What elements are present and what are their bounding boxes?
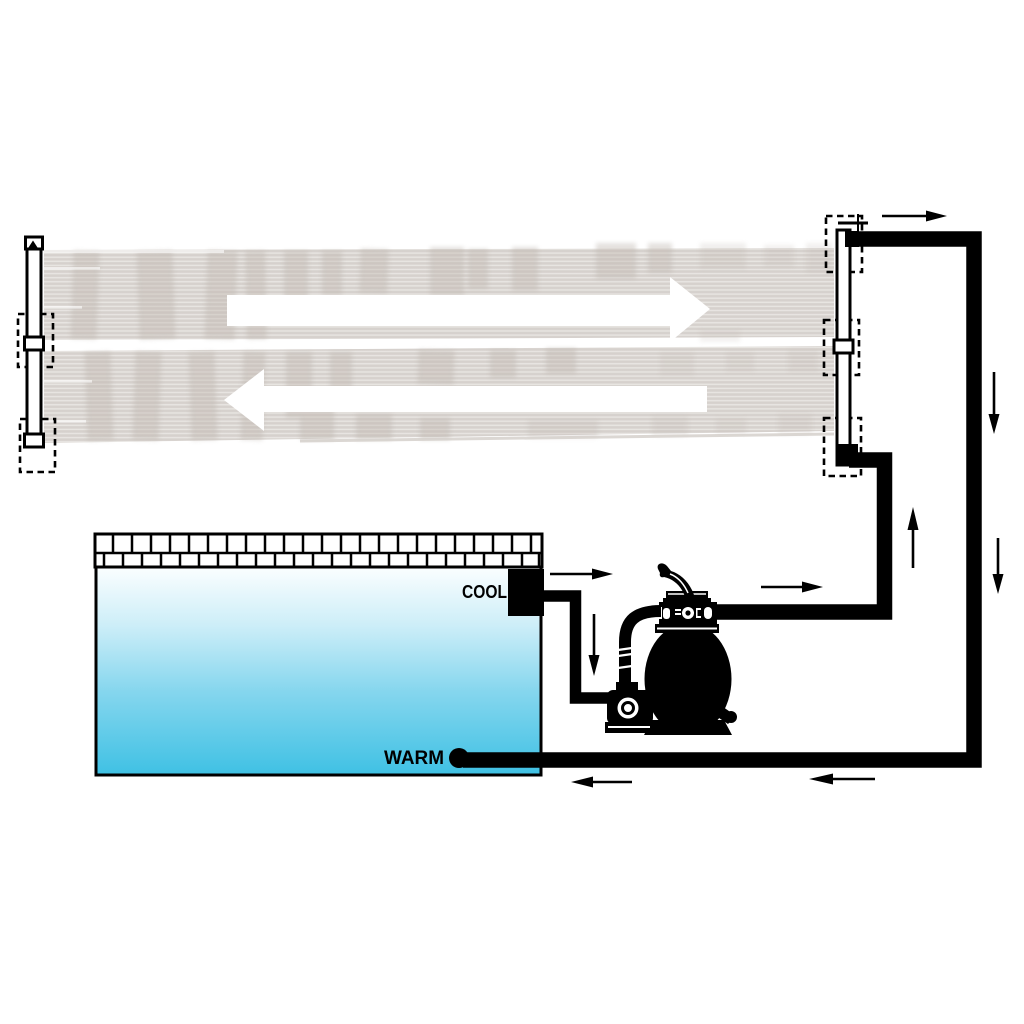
svg-text:COOL: COOL — [462, 582, 507, 602]
svg-text:WARM: WARM — [384, 748, 444, 769]
